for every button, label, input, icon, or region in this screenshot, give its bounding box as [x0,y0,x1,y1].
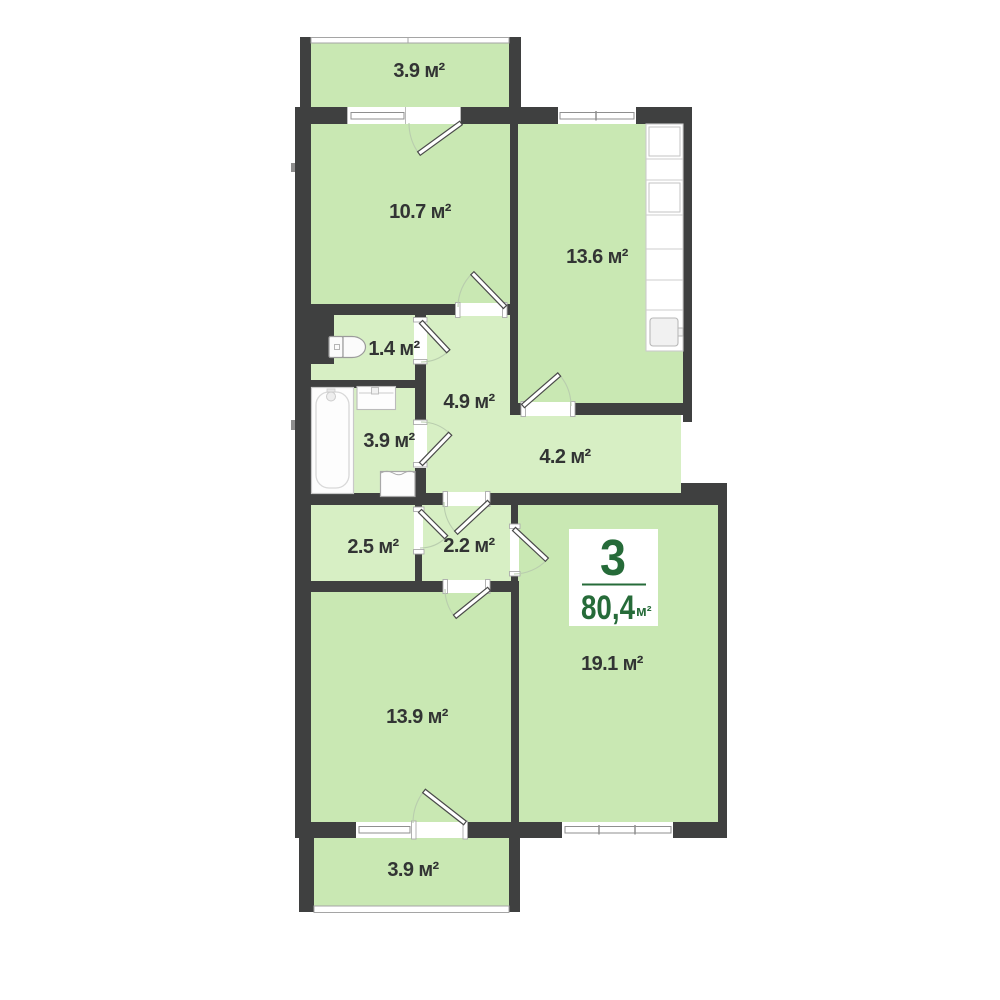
svg-text:10.7 м²: 10.7 м² [389,201,452,223]
svg-text:3.9 м²: 3.9 м² [363,430,415,452]
svg-text:19.1 м²: 19.1 м² [581,653,644,675]
svg-text:2.5 м²: 2.5 м² [347,536,399,558]
svg-text:4.2 м²: 4.2 м² [539,446,591,468]
svg-text:4.9 м²: 4.9 м² [443,391,495,413]
svg-text:3.9 м²: 3.9 м² [387,859,439,881]
svg-text:80,4: 80,4 [581,589,635,627]
svg-text:13.9 м²: 13.9 м² [386,706,449,728]
svg-text:13.6 м²: 13.6 м² [566,246,629,268]
svg-text:3.9 м²: 3.9 м² [393,60,445,82]
svg-text:2.2 м²: 2.2 м² [443,535,495,557]
svg-text:3: 3 [600,529,626,586]
svg-text:м²: м² [636,604,652,620]
svg-text:1.4 м²: 1.4 м² [368,338,420,360]
